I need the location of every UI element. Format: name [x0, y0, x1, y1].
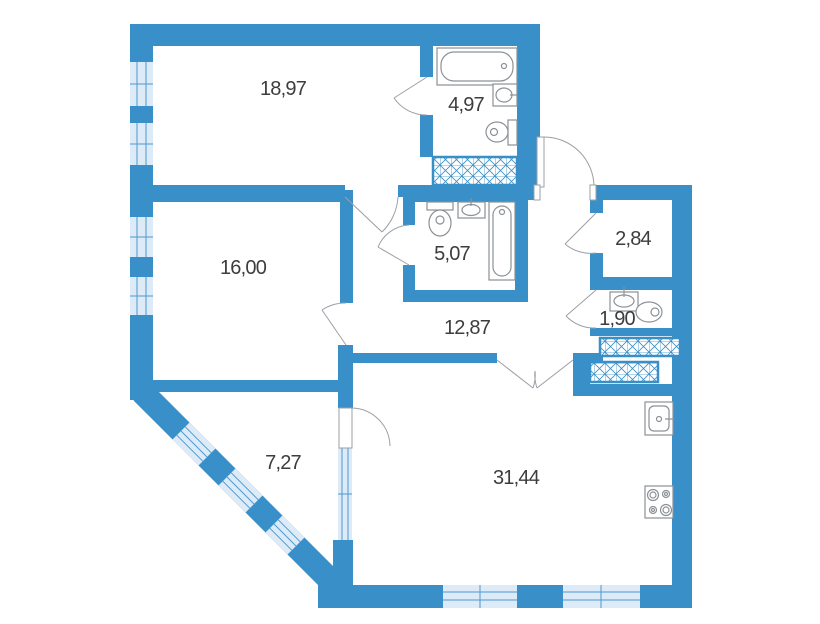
wall-segment	[340, 190, 353, 303]
room-area-label: 18,97	[260, 78, 307, 100]
window	[338, 448, 352, 540]
wall-segment	[515, 190, 528, 302]
door-room-16-00	[322, 303, 346, 345]
wall-segment	[420, 115, 433, 157]
window	[223, 473, 258, 508]
wall-segment	[590, 253, 603, 277]
door-bathroom-4-97	[394, 77, 427, 115]
double-door-living-room	[497, 360, 573, 388]
toilet	[427, 202, 453, 236]
wall-segment	[420, 46, 433, 77]
wall-segment	[130, 190, 353, 202]
room-labels: 18,97 4,97 16,00 5,07 2,84 1,90 12,87 7,…	[220, 78, 652, 489]
wall-segment	[590, 277, 672, 290]
wall-segment	[590, 200, 603, 213]
room-area-label: 4,97	[448, 94, 484, 116]
window	[130, 277, 153, 315]
window	[130, 217, 153, 257]
door-storage-2-84	[565, 213, 596, 253]
wall-segment	[403, 290, 528, 302]
room-area-label: 16,00	[220, 257, 267, 279]
wall-segment	[672, 185, 692, 608]
ventilation-shaft	[590, 362, 658, 382]
floor-plan-drawing: 18,97 4,97 16,00 5,07 2,84 1,90 12,87 7,…	[0, 0, 820, 624]
window	[177, 427, 211, 461]
wall-segment	[403, 190, 528, 202]
windows	[130, 62, 640, 608]
window	[563, 585, 640, 608]
window	[443, 585, 517, 608]
bathtub	[489, 202, 515, 280]
room-area-label: 1,90	[599, 308, 635, 330]
wall-segment	[130, 24, 540, 46]
floor-plan: 18,97 4,97 16,00 5,07 2,84 1,90 12,87 7,…	[0, 0, 820, 624]
wash-basin	[493, 84, 517, 106]
bathtub	[437, 48, 517, 85]
wall-segment	[403, 202, 415, 225]
kitchen-sink	[645, 402, 674, 435]
wall-segment	[340, 353, 497, 363]
toilet	[636, 302, 662, 322]
room-area-label: 7,27	[265, 452, 301, 474]
stove	[645, 486, 673, 518]
room-area-label: 12,87	[444, 317, 491, 339]
balcony-door	[339, 408, 390, 448]
window	[130, 62, 153, 106]
room-area-label: 2,84	[615, 228, 651, 250]
wall-segment	[130, 380, 353, 392]
entrance-door	[534, 137, 596, 200]
door-wc-1-90	[566, 290, 596, 328]
ventilation-shaft	[433, 157, 517, 185]
ventilation-shaft	[600, 338, 680, 356]
toilet	[486, 120, 517, 145]
window	[130, 123, 153, 165]
window	[270, 520, 300, 550]
room-area-label: 5,07	[434, 243, 470, 265]
room-area-label: 31,44	[493, 467, 540, 489]
